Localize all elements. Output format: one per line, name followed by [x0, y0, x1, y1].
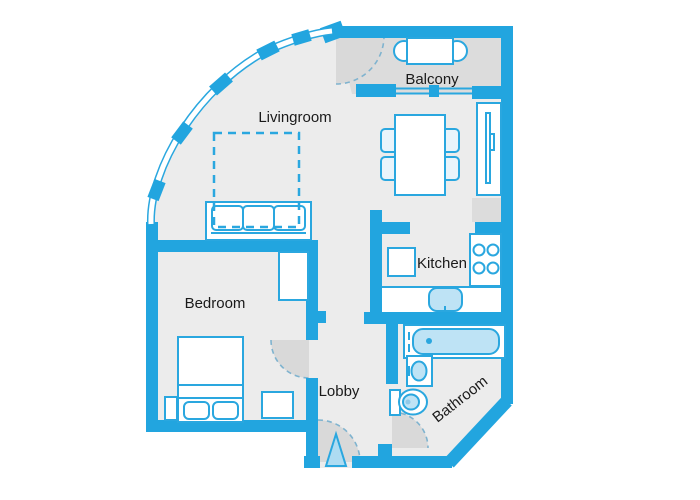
- wall-kitchen-left: [370, 210, 382, 322]
- wall-bottom-right: [352, 456, 452, 468]
- toilet-icon: [390, 390, 427, 416]
- balcony-table-icon: [407, 38, 453, 64]
- pillow-icon: [184, 402, 209, 419]
- wall-lobby-stub: [318, 311, 326, 323]
- floorplan-page: Livingroom Balcony Kitchen Bedroom Lobby…: [0, 0, 700, 500]
- nightstand-icon: [165, 397, 177, 420]
- fridge-icon: [388, 248, 415, 276]
- wall-balcony-stub-right: [472, 86, 501, 99]
- sofa-icon: [206, 202, 311, 240]
- stove-icon: [470, 234, 501, 286]
- floorplan-svg: Livingroom Balcony Kitchen Bedroom Lobby…: [0, 0, 700, 500]
- label-lobby: Lobby: [319, 383, 360, 400]
- wall-bathroom-left: [386, 324, 398, 384]
- wall-kitchen-bathroom-divider: [364, 312, 511, 324]
- washbasin-icon: [407, 356, 432, 386]
- wall-kitchen-top-left: [382, 222, 410, 234]
- kitchen-sink-icon: [429, 288, 462, 311]
- bathtub-icon: [404, 325, 505, 358]
- wall-lobby-left-lower: [306, 378, 318, 468]
- pillow-icon: [213, 402, 238, 419]
- duct-shaft: [472, 198, 501, 222]
- label-balcony: Balcony: [405, 71, 459, 88]
- label-livingroom: Livingroom: [258, 109, 331, 126]
- label-bedroom: Bedroom: [185, 295, 246, 312]
- wall-left: [146, 222, 158, 432]
- label-kitchen: Kitchen: [417, 255, 467, 272]
- wall-top: [330, 26, 513, 38]
- dresser-icon: [262, 392, 293, 418]
- shelf-cabinet-icon: [477, 103, 501, 195]
- wall-bedroom-top: [146, 240, 318, 252]
- wall-bathroom-door-stub: [378, 444, 392, 468]
- balcony-furniture: [394, 38, 467, 64]
- wall-kitchen-top-right: [475, 222, 501, 234]
- bed-icon: [178, 337, 243, 422]
- wall-balcony-stub-left: [356, 84, 396, 97]
- wardrobe-icon: [279, 252, 308, 300]
